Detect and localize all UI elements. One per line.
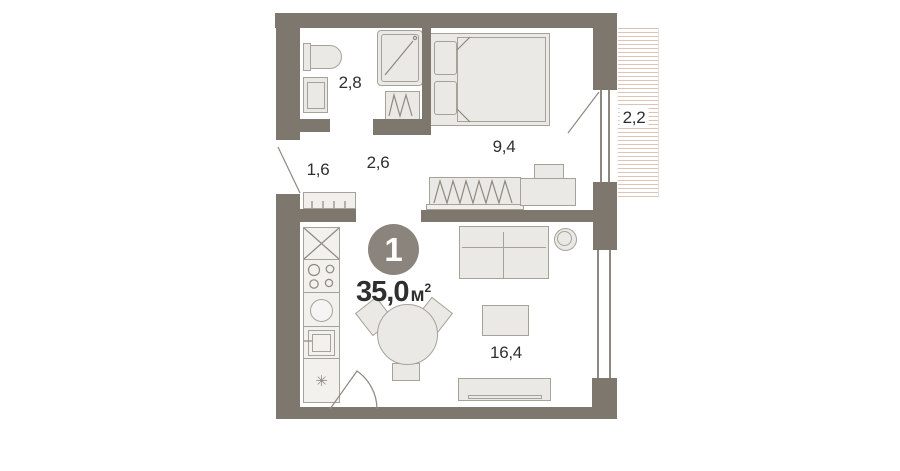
dining-chair <box>392 363 420 381</box>
oven <box>303 326 340 359</box>
room-label-living: 16,4 <box>490 343 522 363</box>
wall-bottom <box>276 407 617 419</box>
living-window <box>597 250 599 378</box>
sofa-seat-divider <box>503 232 504 278</box>
wall-left-upper <box>276 13 300 140</box>
wall-right-upper <box>593 15 617 90</box>
total-area-label: 35,0м2 <box>356 276 431 309</box>
laundry-closet <box>385 91 420 122</box>
wardrobe <box>429 177 521 205</box>
room-label-bedroom: 9,4 <box>493 137 516 157</box>
wall-divider-right <box>421 210 617 222</box>
room-label-corridor: 2,6 <box>367 153 390 173</box>
bed-blanket <box>457 37 546 122</box>
toilet-bowl <box>310 45 342 69</box>
bedroom-stool <box>534 164 564 179</box>
entry-door-swing <box>278 147 300 193</box>
pouf-inner <box>557 231 572 246</box>
coffee-table <box>482 305 529 336</box>
wall-left-lower <box>276 194 300 419</box>
shower-cabin <box>377 30 423 86</box>
balcony-door-glass <box>600 90 602 182</box>
total-area-value: 35,0 <box>356 276 408 308</box>
sofa <box>459 226 549 279</box>
balcony-door-glass <box>608 90 610 182</box>
wall-bathroom-south-right <box>373 119 431 135</box>
wall-right-lower <box>592 378 617 418</box>
room-count-badge: 1 <box>368 224 419 275</box>
stove <box>303 259 340 293</box>
wall-bathroom-south-left <box>300 119 330 132</box>
pillow <box>434 41 457 75</box>
total-area-sup: 2 <box>425 281 432 295</box>
bedroom-desk <box>520 178 576 206</box>
floor-plan[interactable]: ✳ 2,8 1,6 2,6 9,4 2,2 16,4 1 <box>0 0 900 471</box>
tv-stand <box>458 378 551 401</box>
wall-top <box>275 13 617 28</box>
pillow <box>434 81 457 115</box>
living-window <box>609 250 611 378</box>
kitchen-sink <box>310 299 333 322</box>
snowflake-icon: ✳ <box>303 372 340 390</box>
bathroom-sink <box>303 77 328 113</box>
room-label-hallway: 1,6 <box>307 160 330 180</box>
balcony-door-swing <box>568 92 599 133</box>
dining-table <box>377 304 438 365</box>
kitchen-cabinet <box>303 227 340 260</box>
wall-divider-left <box>300 209 356 222</box>
total-area-unit: м <box>410 285 424 306</box>
room-label-balcony: 2,2 <box>620 108 649 128</box>
room-label-bathroom: 2,8 <box>339 73 362 93</box>
coat-rack <box>303 192 356 209</box>
